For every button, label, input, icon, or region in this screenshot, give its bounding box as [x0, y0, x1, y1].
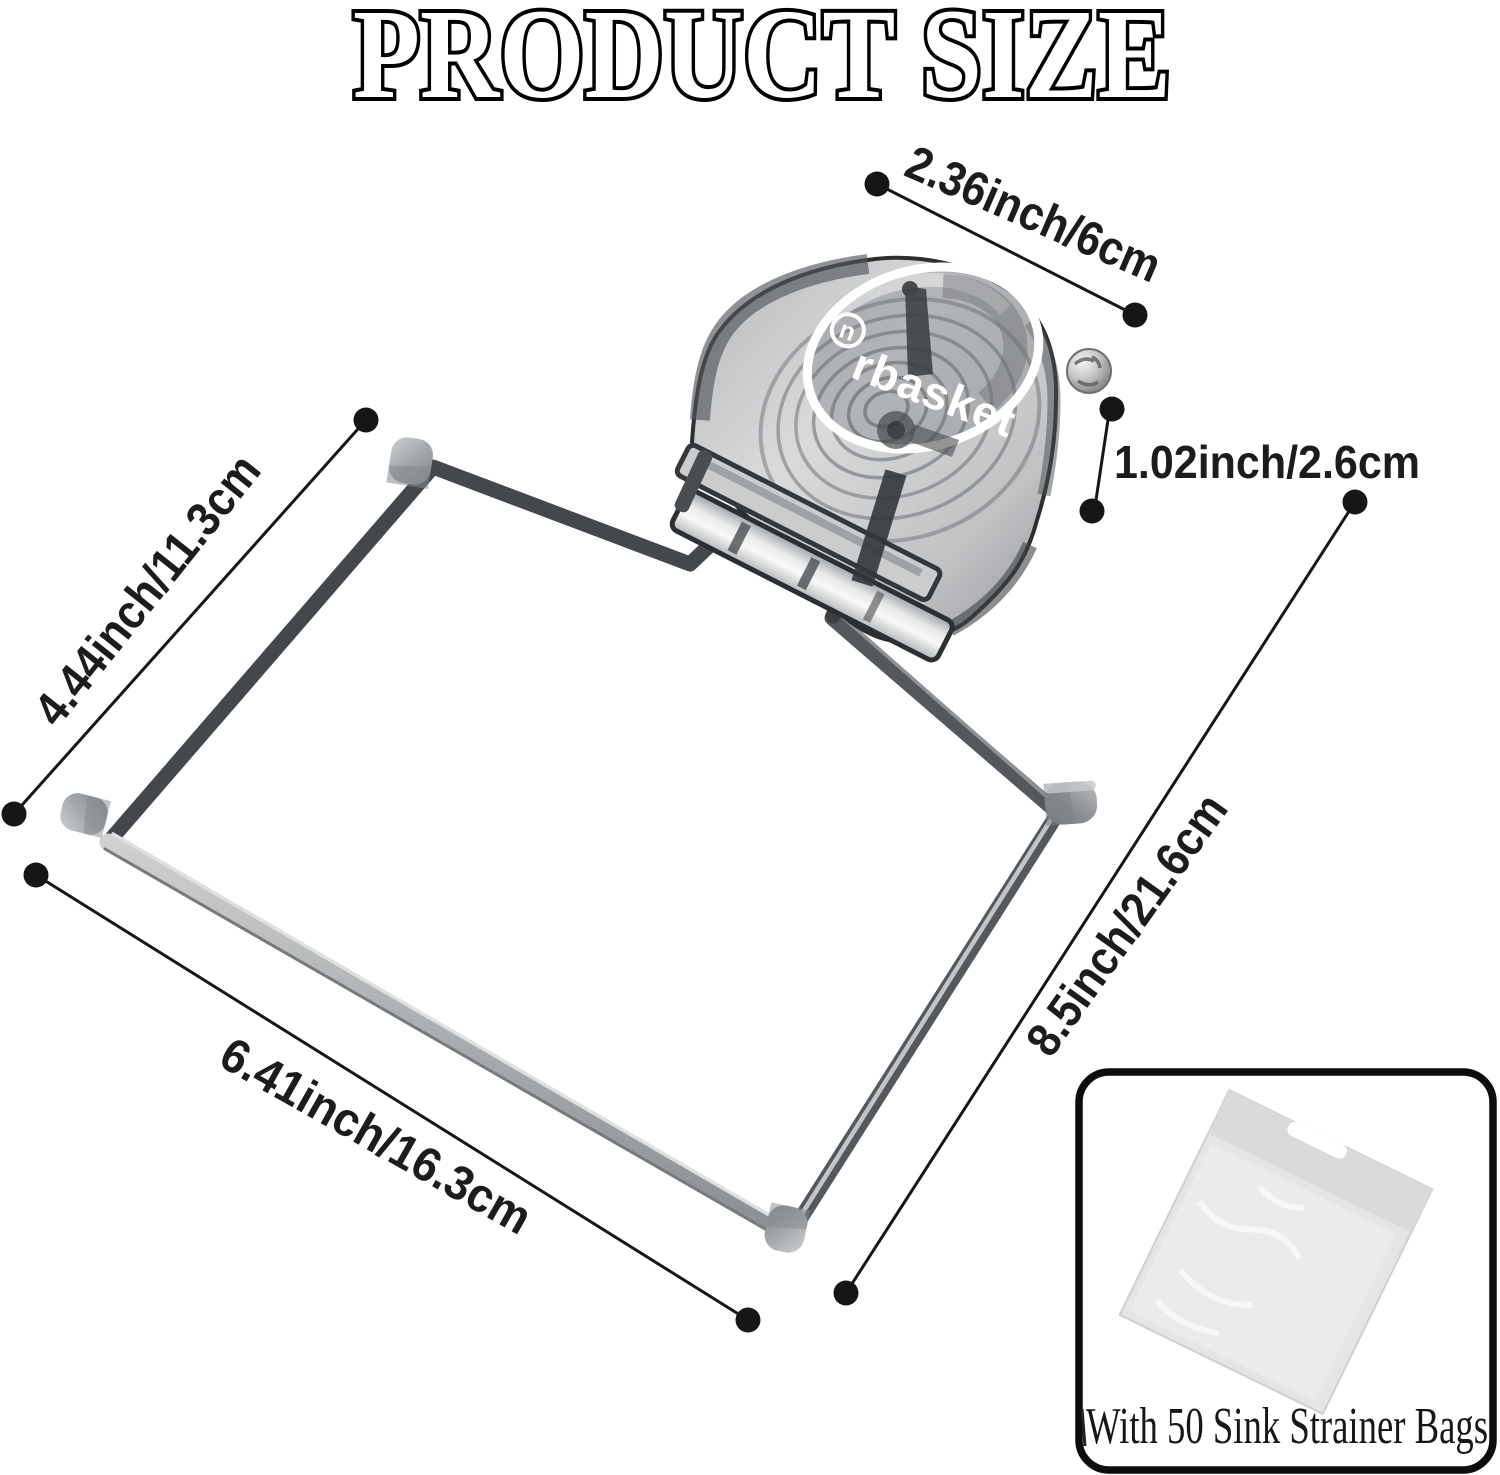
svg-text:1.02inch/2.6cm: 1.02inch/2.6cm [1114, 436, 1420, 488]
svg-text:With 50 Sink Strainer Bags: With 50 Sink Strainer Bags [1086, 1398, 1488, 1455]
svg-text:PRODUCT SIZE: PRODUCT SIZE [353, 0, 1171, 125]
